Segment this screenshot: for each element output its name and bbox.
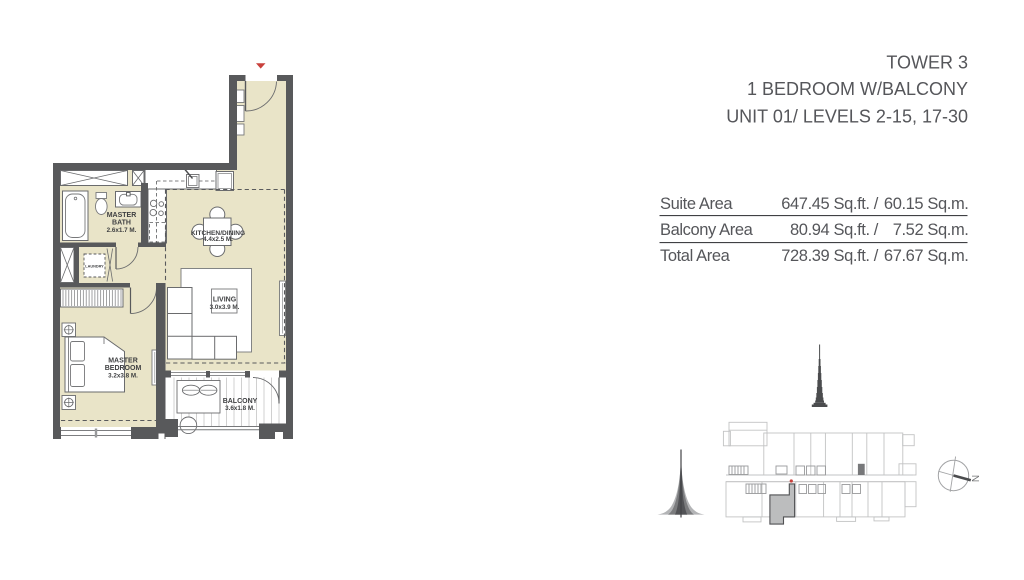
svg-text:MASTER: MASTER xyxy=(107,212,137,219)
svg-text:1 BEDROOM W/BALCONY: 1 BEDROOM W/BALCONY xyxy=(747,79,968,99)
svg-text:Balcony Area: Balcony Area xyxy=(660,221,754,239)
svg-text:67.67 Sq.m.: 67.67 Sq.m. xyxy=(884,247,969,265)
svg-text:LIVING: LIVING xyxy=(213,297,237,304)
svg-text:647.45 Sq.ft. /: 647.45 Sq.ft. / xyxy=(781,195,879,213)
svg-text:2.6x1.7 M.: 2.6x1.7 M. xyxy=(107,227,137,234)
svg-text:TOWER 3: TOWER 3 xyxy=(886,53,968,73)
svg-text:3.6x1.8 M.: 3.6x1.8 M. xyxy=(225,405,255,412)
svg-text:MASTER: MASTER xyxy=(108,358,138,365)
svg-text:BEDROOM: BEDROOM xyxy=(105,365,142,372)
svg-text:60.15 Sq.m.: 60.15 Sq.m. xyxy=(884,195,969,213)
svg-text:Suite Area: Suite Area xyxy=(660,195,733,213)
svg-text:LAUNDRY: LAUNDRY xyxy=(85,264,104,268)
svg-text:UNIT 01/ LEVELS 2-15, 17-30: UNIT 01/ LEVELS 2-15, 17-30 xyxy=(726,107,968,127)
svg-text:3.2x3.8 M.: 3.2x3.8 M. xyxy=(108,372,138,379)
svg-text:N: N xyxy=(969,475,980,482)
svg-text:728.39 Sq.ft. /: 728.39 Sq.ft. / xyxy=(781,247,879,265)
svg-text:4.4x2.5 M.: 4.4x2.5 M. xyxy=(203,236,233,243)
svg-text:7.52 Sq.m.: 7.52 Sq.m. xyxy=(893,221,969,239)
svg-text:Total Area: Total Area xyxy=(660,247,731,265)
svg-text:80.94 Sq.ft. /: 80.94 Sq.ft. / xyxy=(790,221,879,239)
svg-text:BALCONY: BALCONY xyxy=(223,398,258,405)
svg-text:BATH: BATH xyxy=(112,220,131,227)
svg-text:3.0x3.9 M.: 3.0x3.9 M. xyxy=(210,304,240,311)
